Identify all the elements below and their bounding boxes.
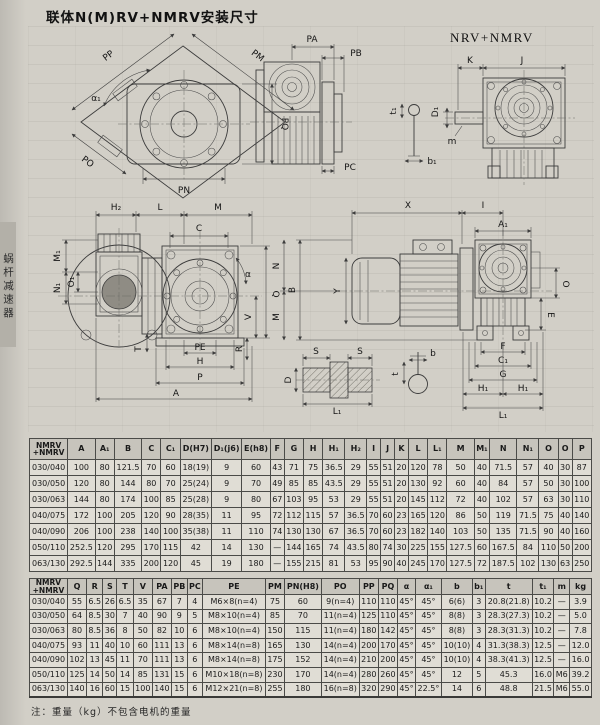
value-cell: 70 <box>285 609 322 624</box>
dimension-column-header: B <box>114 439 141 460</box>
value-cell: 230 <box>265 667 284 682</box>
value-cell: 60 <box>133 638 152 653</box>
value-cell: 14(n=4) <box>321 653 359 668</box>
value-cell: 130 <box>304 524 323 540</box>
value-cell: 4 <box>187 595 202 610</box>
value-cell: 36.5 <box>323 460 345 476</box>
value-cell: 140 <box>142 524 161 540</box>
value-cell: 45 <box>103 653 117 668</box>
dim-label-k: K <box>467 56 474 66</box>
value-cell: 8 <box>117 624 133 639</box>
value-cell: 45° <box>415 624 441 639</box>
value-cell: 45° <box>398 653 416 668</box>
value-cell: 42 <box>180 540 211 556</box>
value-cell: 140 <box>67 682 86 697</box>
value-cell: 8.5 <box>87 609 103 624</box>
value-cell: 110 <box>359 595 378 610</box>
value-cell: 260 <box>378 667 397 682</box>
input-key-detail-drawing: t₁ b₁ <box>389 104 437 167</box>
dim-label-x: X <box>405 201 411 211</box>
value-cell: 245 <box>408 556 427 572</box>
table-row: 040/09010213451170111136M8×14(n=8)175152… <box>30 653 592 668</box>
value-cell: 140 <box>152 682 171 697</box>
value-cell: 320 <box>359 682 378 697</box>
value-cell: 90 <box>152 609 171 624</box>
dimension-column-header: N₁ <box>517 439 539 460</box>
value-cell: 100 <box>133 682 152 697</box>
nrv-front-view-drawing: NRV+NMRV K J D₁ <box>431 30 575 185</box>
value-cell: 70 <box>133 653 152 668</box>
value-cell: 23 <box>395 524 409 540</box>
value-cell: 206 <box>68 524 95 540</box>
model-cell: 030/063 <box>30 624 68 639</box>
value-cell: 55.0 <box>570 682 592 697</box>
value-cell: 30 <box>103 609 117 624</box>
value-cell: 335 <box>114 556 141 572</box>
value-cell: 40 <box>558 524 572 540</box>
value-cell: 6(6) <box>441 595 472 610</box>
value-cell: 40 <box>558 508 572 524</box>
dim-label-po: PO <box>79 155 95 171</box>
value-cell: 110 <box>572 492 591 508</box>
value-cell: 45° <box>415 653 441 668</box>
model-cell: 040/090 <box>30 653 68 668</box>
value-cell: 7 <box>117 609 133 624</box>
value-cell: 28.3(31.3) <box>485 624 532 639</box>
value-cell: 11 <box>117 653 133 668</box>
dim-label-e: E <box>545 312 555 318</box>
value-cell: 200 <box>378 653 397 668</box>
value-cell: 102 <box>517 556 539 572</box>
model-cell: 050/110 <box>30 667 68 682</box>
dim-label-t: t <box>391 372 401 376</box>
value-cell: 30 <box>558 492 572 508</box>
value-cell: 292.5 <box>68 556 95 572</box>
value-cell: 19 <box>211 556 241 572</box>
dim-label-h1: H₁ <box>478 384 489 394</box>
value-cell: 144 <box>284 540 303 556</box>
value-cell: 120 <box>161 556 180 572</box>
value-cell: 20 <box>395 492 409 508</box>
dimension-column-header: D₁(j6) <box>211 439 241 460</box>
value-cell: 84 <box>490 476 517 492</box>
value-cell: 100 <box>95 508 114 524</box>
value-cell: 28(35) <box>180 508 211 524</box>
value-cell: 130 <box>539 556 558 572</box>
value-cell: 20 <box>395 460 409 476</box>
value-cell: 80 <box>95 476 114 492</box>
nrv-title: NRV+NMRV <box>450 30 534 45</box>
value-cell: — <box>554 653 570 668</box>
value-cell: 67 <box>270 492 284 508</box>
value-cell: 119 <box>490 508 517 524</box>
value-cell: 100 <box>161 524 180 540</box>
value-cell: 13 <box>87 653 103 668</box>
value-cell: 5.0 <box>570 609 592 624</box>
value-cell: 115 <box>161 540 180 556</box>
dim-label-n1: N₁ <box>53 282 63 293</box>
value-cell: 9 <box>211 476 241 492</box>
table-row: 030/05012080144807025(24)97049858543.529… <box>30 476 592 492</box>
value-cell: 200 <box>142 556 161 572</box>
value-cell: 20 <box>395 476 409 492</box>
value-cell: — <box>554 638 570 653</box>
value-cell: 130 <box>284 524 303 540</box>
value-cell: 81 <box>323 556 345 572</box>
value-cell: 45.3 <box>485 667 532 682</box>
value-cell: 29 <box>345 476 367 492</box>
value-cell: 60 <box>381 508 395 524</box>
value-cell: 35 <box>133 595 152 610</box>
value-cell: 8(8) <box>441 609 472 624</box>
value-cell: 71 <box>284 460 303 476</box>
value-cell: 142 <box>378 624 397 639</box>
value-cell: 43.5 <box>345 540 367 556</box>
value-cell: 85 <box>304 476 323 492</box>
dim-label-o: O <box>560 280 570 287</box>
value-cell: 60 <box>103 682 117 697</box>
value-cell: 225 <box>408 540 427 556</box>
table-row: 040/0751721002051209028(35)1195721121155… <box>30 508 592 524</box>
value-cell: 111 <box>152 653 171 668</box>
value-cell: 74 <box>270 524 284 540</box>
model-cell: 030/040 <box>30 595 68 610</box>
value-cell: 121.5 <box>114 460 141 476</box>
dimension-column-header: PE <box>203 579 266 595</box>
value-cell: 140 <box>572 508 591 524</box>
dimension-column-header: PM <box>265 579 284 595</box>
value-cell: 102 <box>490 492 517 508</box>
value-cell: 3 <box>472 624 485 639</box>
value-cell: 22.5° <box>415 682 441 697</box>
value-cell: 12.0 <box>570 638 592 653</box>
value-cell: 84 <box>517 540 539 556</box>
dimension-column-header: kg <box>570 579 592 595</box>
value-cell: 4 <box>472 638 485 653</box>
value-cell: 45° <box>415 595 441 610</box>
dimension-column-header: t₁ <box>532 579 554 595</box>
model-column-header: NMRV +NMRV <box>30 439 68 460</box>
value-cell: 165 <box>265 638 284 653</box>
value-cell: 100 <box>95 524 114 540</box>
dim-label-b-left: B <box>288 287 298 293</box>
value-cell: 50 <box>474 508 489 524</box>
dim-label-r: R <box>235 346 245 352</box>
dimension-column-header: PO <box>321 579 359 595</box>
value-cell: 103 <box>447 524 474 540</box>
value-cell: 75 <box>265 595 284 610</box>
value-cell: 50 <box>447 460 474 476</box>
value-cell: 10.2 <box>532 624 554 639</box>
dim-label-t1: t₁ <box>389 107 399 115</box>
value-cell: 50 <box>103 667 117 682</box>
table-row: 050/110252.51202951701154214130—14416574… <box>30 540 592 556</box>
value-cell: 16.0 <box>570 653 592 668</box>
value-cell: 55 <box>367 492 381 508</box>
value-cell: 10 <box>171 624 187 639</box>
value-cell: 103 <box>284 492 303 508</box>
dimension-column-header: PQ <box>378 579 397 595</box>
value-cell: 10(10) <box>441 638 472 653</box>
value-cell: 150 <box>265 624 284 639</box>
model-cell: 063/130 <box>30 556 68 572</box>
dim-label-o1: O₁ <box>67 276 77 287</box>
value-cell: 100 <box>142 492 161 508</box>
value-cell: 45° <box>398 638 416 653</box>
dim-label-n: N <box>272 263 282 270</box>
value-cell: 70 <box>161 476 180 492</box>
value-cell: 26 <box>103 595 117 610</box>
value-cell: 6 <box>187 653 202 668</box>
value-cell: 45° <box>398 624 416 639</box>
value-cell: 93 <box>67 638 86 653</box>
dimension-column-header: b₁ <box>472 579 485 595</box>
value-cell: 63 <box>539 492 558 508</box>
value-cell: 9 <box>211 460 241 476</box>
value-cell: 7.8 <box>570 624 592 639</box>
value-cell: 67 <box>152 595 171 610</box>
value-cell: 55 <box>367 476 381 492</box>
value-cell: M6 <box>554 682 570 697</box>
value-cell: 57 <box>517 492 539 508</box>
value-cell: 50 <box>474 524 489 540</box>
value-cell: 120 <box>428 508 447 524</box>
dimension-column-header: E(h8) <box>242 439 271 460</box>
value-cell: 50 <box>133 624 152 639</box>
dim-label-pn: PN <box>178 186 190 196</box>
value-cell: 95 <box>242 508 271 524</box>
value-cell: 15 <box>171 682 187 697</box>
value-cell: 3.9 <box>570 595 592 610</box>
value-cell: 45° <box>415 609 441 624</box>
dimension-column-header: S <box>103 579 117 595</box>
table-row: 063/130140166015100140156M12×21(n=8)2551… <box>30 682 592 697</box>
value-cell: 29 <box>345 460 367 476</box>
value-cell: 51 <box>381 460 395 476</box>
dim-label-h: H <box>197 357 204 367</box>
dimension-column-header: R <box>87 579 103 595</box>
value-cell: 78 <box>428 460 447 476</box>
value-cell: 252.5 <box>68 540 95 556</box>
value-cell: 144 <box>68 492 95 508</box>
value-cell: M8×10(n=4) <box>203 624 266 639</box>
model-cell: 040/075 <box>30 508 68 524</box>
dimension-column-header: α₁ <box>415 579 441 595</box>
value-cell: 85 <box>161 492 180 508</box>
value-cell: 131 <box>152 667 171 682</box>
value-cell: M8×14(n=8) <box>203 653 266 668</box>
value-cell: 55 <box>367 460 381 476</box>
table-row: 040/0759311401060111136M8×14(n=8)1651301… <box>30 638 592 653</box>
value-cell: 80 <box>95 492 114 508</box>
value-cell: 90 <box>539 524 558 540</box>
value-cell: 174 <box>114 492 141 508</box>
value-cell: 140 <box>428 524 447 540</box>
value-cell: 112 <box>428 492 447 508</box>
dimension-column-header: PB <box>171 579 187 595</box>
value-cell: 48.8 <box>485 682 532 697</box>
value-cell: 200 <box>359 638 378 653</box>
value-cell: 43 <box>270 460 284 476</box>
value-cell: 31.3(38.3) <box>485 638 532 653</box>
value-cell: 80 <box>142 476 161 492</box>
value-cell: — <box>554 595 570 610</box>
value-cell: 10.2 <box>532 609 554 624</box>
value-cell: 112 <box>284 508 303 524</box>
value-cell: 80 <box>67 624 86 639</box>
value-cell: 16 <box>87 682 103 697</box>
dimension-column-header: C₁ <box>161 439 180 460</box>
value-cell: 40 <box>395 556 409 572</box>
value-cell: 57 <box>517 476 539 492</box>
value-cell: 172 <box>68 508 95 524</box>
table-footnote: 注：重量（kg）不包含电机的重量 <box>31 704 192 718</box>
dim-label-a: A <box>173 389 180 399</box>
value-cell: 71.5 <box>490 460 517 476</box>
dim-label-d1: D₁ <box>431 106 441 117</box>
value-cell: 165 <box>408 508 427 524</box>
value-cell: 15 <box>171 667 187 682</box>
value-cell: 15 <box>117 682 133 697</box>
dim-label-p: P <box>197 373 203 383</box>
value-cell: 64 <box>67 609 86 624</box>
dimension-column-header: PN(H8) <box>285 579 322 595</box>
value-cell: 45° <box>398 682 416 697</box>
value-cell: 49 <box>270 476 284 492</box>
dimension-column-header: O <box>539 439 558 460</box>
value-cell: 120 <box>142 508 161 524</box>
value-cell: 115 <box>285 624 322 639</box>
coupling-detail-drawing: S S D L₁ <box>284 347 380 417</box>
dimension-column-header: I <box>367 439 381 460</box>
value-cell: 11 <box>211 524 241 540</box>
value-cell: 51 <box>381 492 395 508</box>
value-cell: 35(38) <box>180 524 211 540</box>
value-cell: 45° <box>398 595 416 610</box>
value-cell: 40 <box>103 638 117 653</box>
dimension-column-header: F <box>270 439 284 460</box>
value-cell: 30 <box>558 460 572 476</box>
value-cell: 95 <box>304 492 323 508</box>
value-cell: 70 <box>367 524 381 540</box>
value-cell: 40 <box>474 492 489 508</box>
dim-label-i: I <box>482 201 485 211</box>
value-cell: 50 <box>539 476 558 492</box>
gearbox-side-view-drawing: PA PB PC <box>250 35 362 174</box>
value-cell: 71.5 <box>517 508 539 524</box>
value-cell: 86 <box>447 508 474 524</box>
value-cell: 45° <box>398 667 416 682</box>
value-cell: 85 <box>265 609 284 624</box>
value-cell: 170 <box>285 667 322 682</box>
dim-label-l1-right: L₁ <box>499 411 508 421</box>
value-cell: 130 <box>408 476 427 492</box>
dim-label-b1: b₁ <box>427 157 437 167</box>
table-row: 063/130292.51443352001204519180—15521581… <box>30 556 592 572</box>
model-column-header: NMRV +NMRV <box>30 579 68 595</box>
value-cell: 180 <box>285 682 322 697</box>
value-cell: 36 <box>103 624 117 639</box>
value-cell: 145 <box>408 492 427 508</box>
value-cell: 18(19) <box>180 460 211 476</box>
dim-label-pm: PM <box>249 48 266 64</box>
value-cell: 127.5 <box>447 540 474 556</box>
value-cell: 70 <box>367 508 381 524</box>
value-cell: 21.5 <box>532 682 554 697</box>
value-cell: 182 <box>408 524 427 540</box>
value-cell: 40 <box>474 476 489 492</box>
combined-front-view-drawing: H₂ L M C M₁ N₁ O₁ α Q V R T PE H P <box>53 203 280 402</box>
table-row: 030/063808.53685082106M8×10(n=4)15011511… <box>30 624 592 639</box>
value-cell: 180 <box>359 624 378 639</box>
dim-label-pb: PB <box>350 49 362 59</box>
value-cell: 170 <box>378 638 397 653</box>
value-cell: 12.5 <box>532 638 554 653</box>
value-cell: 111 <box>152 638 171 653</box>
dim-label-m-left: M <box>272 313 282 321</box>
value-cell: 16(n=8) <box>321 682 359 697</box>
value-cell: 20.8(21.8) <box>485 595 532 610</box>
value-cell: 120 <box>408 460 427 476</box>
value-cell: 14 <box>211 540 241 556</box>
value-cell: 9 <box>211 492 241 508</box>
dimension-column-header: G <box>284 439 303 460</box>
value-cell: M6×8(n=4) <box>203 595 266 610</box>
value-cell: 167.5 <box>490 540 517 556</box>
dim-label-alpha1: α₁ <box>91 94 101 104</box>
value-cell: 6 <box>472 682 485 697</box>
value-cell: 135 <box>490 524 517 540</box>
model-cell: 050/110 <box>30 540 68 556</box>
dimension-table-main: NMRV +NMRVAA₁BCC₁D(H7)D₁(j6)E(h8)FGHH₁H₂… <box>29 438 592 572</box>
model-cell: 063/130 <box>30 682 68 697</box>
value-cell: 6 <box>187 624 202 639</box>
dimension-column-header: J <box>381 439 395 460</box>
dimension-column-header: t <box>485 579 532 595</box>
value-cell: 71.5 <box>517 524 539 540</box>
dimension-column-header: A₁ <box>95 439 114 460</box>
dimension-column-header: H₁ <box>323 439 345 460</box>
value-cell: 7 <box>171 595 187 610</box>
value-cell: 45° <box>398 609 416 624</box>
dim-label-j: J <box>520 56 524 66</box>
value-cell: 51 <box>381 476 395 492</box>
value-cell: 120 <box>68 476 95 492</box>
value-cell: 60 <box>474 540 489 556</box>
value-cell: 45° <box>415 667 441 682</box>
value-cell: 130 <box>242 540 271 556</box>
value-cell: 11(n=4) <box>321 609 359 624</box>
dim-label-m-top: M <box>214 203 222 213</box>
value-cell: 160 <box>572 524 591 540</box>
model-cell: 040/075 <box>30 638 68 653</box>
value-cell: 155 <box>284 556 303 572</box>
dim-label-h1b: H₁ <box>518 384 529 394</box>
value-cell: — <box>270 556 284 572</box>
value-cell: 170 <box>142 540 161 556</box>
value-cell: 100 <box>68 460 95 476</box>
value-cell: 10(10) <box>441 653 472 668</box>
value-cell: 12.5 <box>532 653 554 668</box>
value-cell: 144 <box>114 476 141 492</box>
value-cell: 144 <box>95 556 114 572</box>
value-cell: 290 <box>378 682 397 697</box>
dim-label-m: m <box>448 137 457 147</box>
dimension-column-header: H <box>304 439 323 460</box>
dimension-column-header: C <box>142 439 161 460</box>
value-cell: 40 <box>474 460 489 476</box>
value-cell: — <box>554 624 570 639</box>
